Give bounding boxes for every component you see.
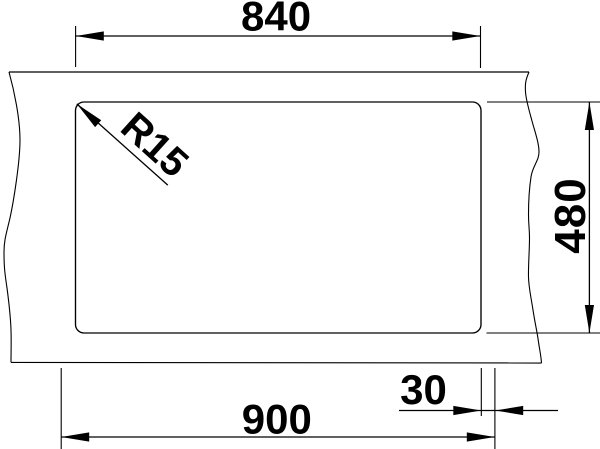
svg-text:480: 480 bbox=[546, 177, 595, 253]
svg-text:900: 900 bbox=[242, 395, 312, 442]
svg-text:840: 840 bbox=[241, 0, 311, 40]
svg-text:30: 30 bbox=[400, 366, 447, 413]
